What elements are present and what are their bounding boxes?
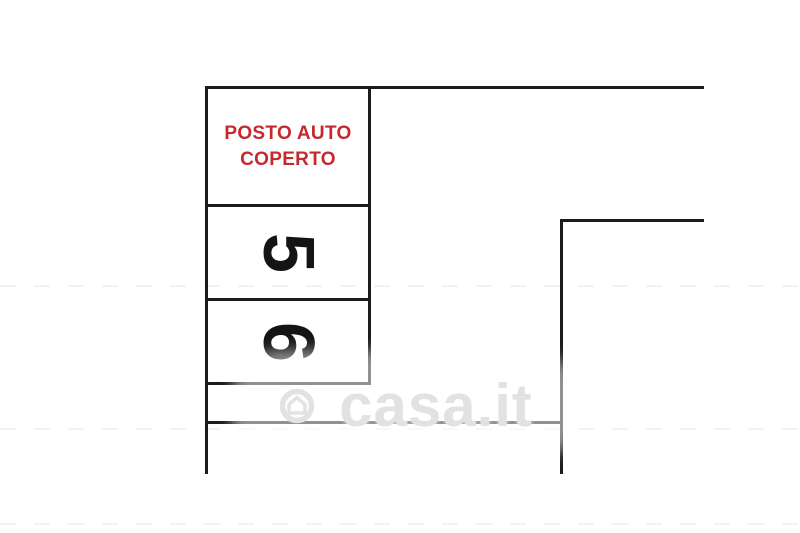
parking-floor-plan: POSTO AUTO COPERTO 5 6 casa.it — [0, 0, 800, 533]
watermark-tile-artifact-row — [0, 523, 800, 525]
watermark-text: casa.it — [339, 376, 533, 436]
casa-it-house-logo-icon — [279, 388, 315, 424]
parking-spot-5-cell: 5 — [208, 207, 368, 298]
watermark-tile-artifact-row — [0, 285, 800, 287]
casa-it-watermark: casa.it — [238, 358, 574, 454]
covered-parking-label-cell: POSTO AUTO COPERTO — [208, 89, 368, 204]
parking-spot-5-number: 5 — [252, 232, 324, 272]
covered-parking-label-line2: COPERTO — [240, 147, 336, 172]
wall-line-spots-right — [368, 86, 371, 385]
wall-line-right-horizontal — [560, 219, 704, 222]
covered-parking-label-line1: POSTO AUTO — [224, 121, 351, 146]
